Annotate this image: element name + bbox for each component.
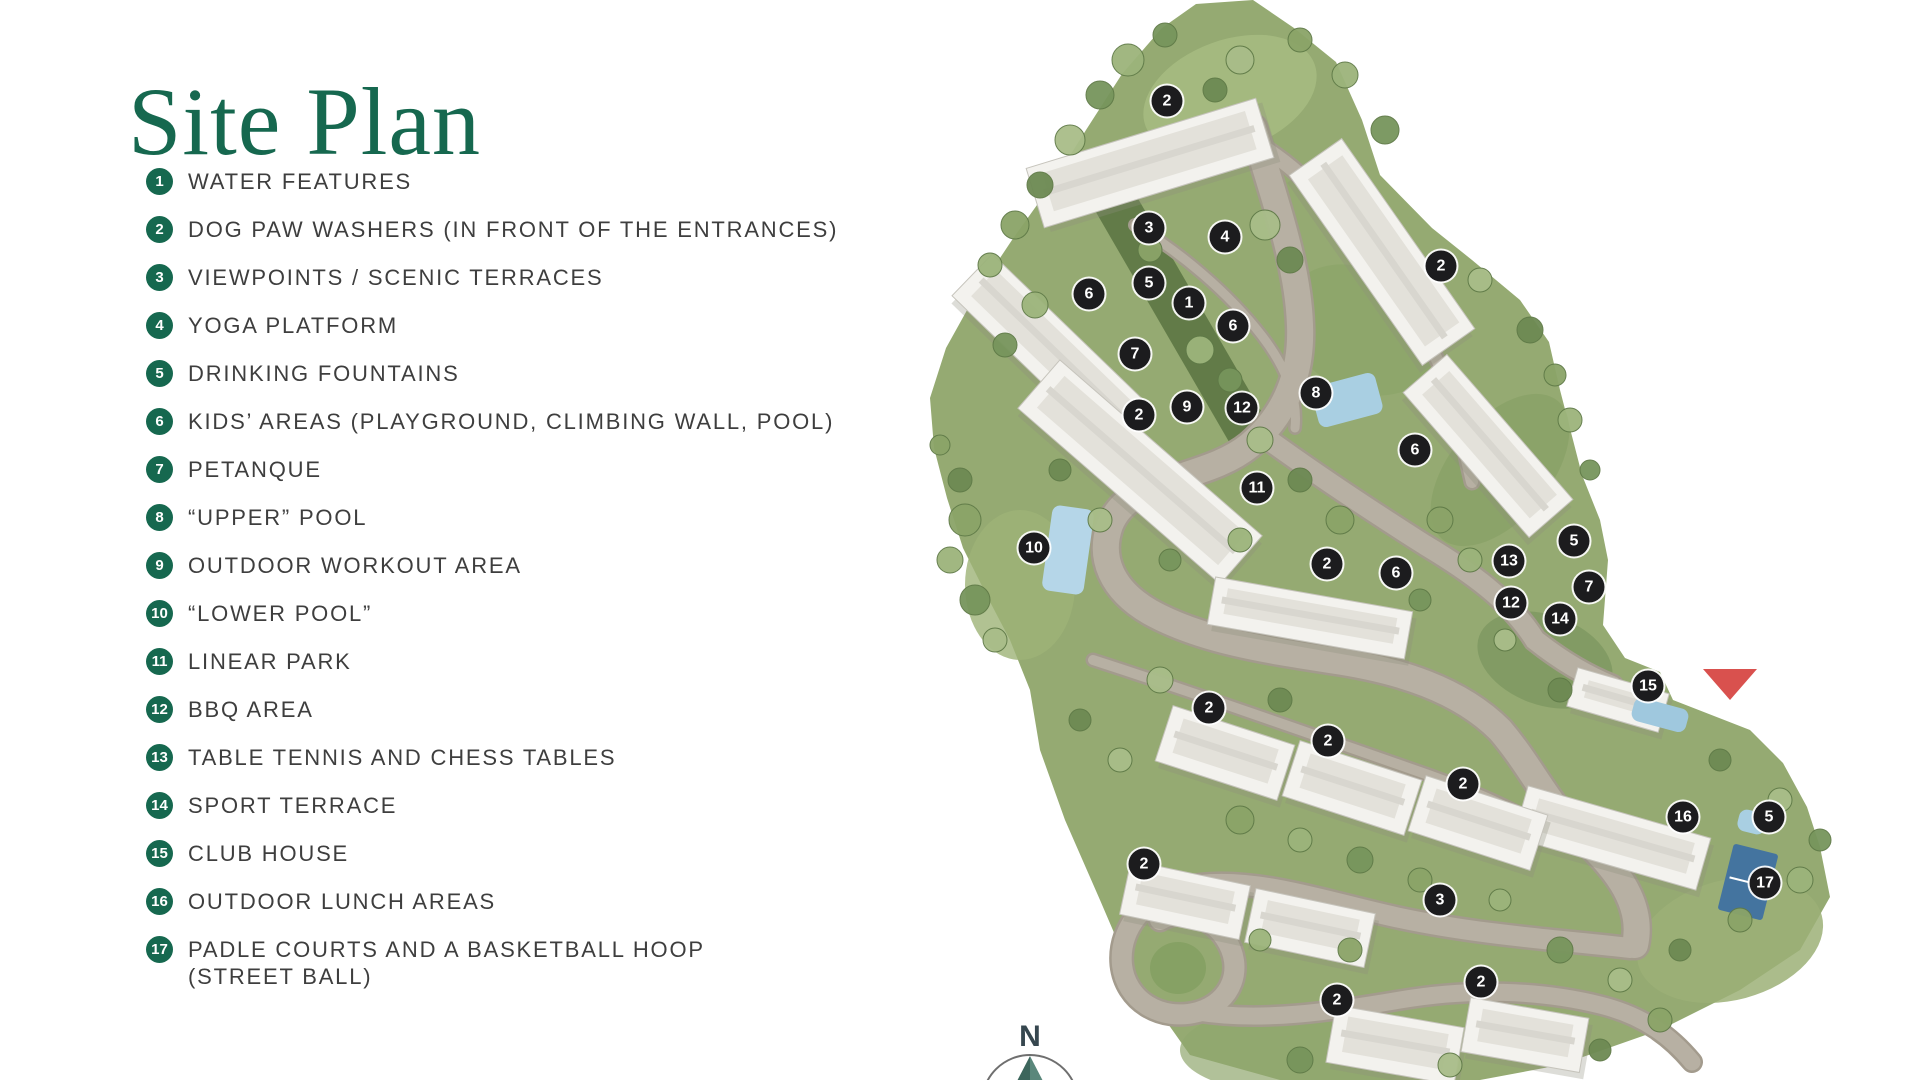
legend-item-11: 11LINEAR PARK [146, 648, 838, 696]
legend-label-text: OUTDOOR LUNCH AREAS [188, 888, 496, 915]
compass-needle-icon [1016, 1056, 1030, 1080]
map-marker-12: 12 [1227, 393, 1258, 424]
map-marker-16: 16 [1668, 802, 1699, 833]
legend-item-3: 3VIEWPOINTS / SCENIC TERRACES [146, 264, 838, 312]
legend-label: DRINKING FOUNTAINS [188, 360, 460, 387]
map-marker-2: 2 [1322, 985, 1353, 1016]
legend-item-6: 6KIDS’ AREAS (PLAYGROUND, CLIMBING WALL,… [146, 408, 838, 456]
legend-badge: 5 [146, 360, 173, 387]
legend-label: “UPPER” POOL [188, 504, 367, 531]
legend-badge: 6 [146, 408, 173, 435]
map-marker-5: 5 [1134, 268, 1165, 299]
compass: N [972, 1008, 1092, 1080]
legend-item-7: 7PETANQUE [146, 456, 838, 504]
map-marker-6: 6 [1218, 311, 1249, 342]
legend-label: DOG PAW WASHERS (IN FRONT OF THE ENTRANC… [188, 216, 838, 243]
legend-label-text: DOG PAW WASHERS (IN FRONT OF THE ENTRANC… [188, 216, 838, 243]
legend-label-text: PETANQUE [188, 456, 322, 483]
legend-label-text: SPORT TERRACE [188, 792, 397, 819]
map-marker-6: 6 [1400, 435, 1431, 466]
legend-item-16: 16OUTDOOR LUNCH AREAS [146, 888, 838, 936]
legend-label: SPORT TERRACE [188, 792, 397, 819]
legend-badge: 9 [146, 552, 173, 579]
legend-badge: 14 [146, 792, 173, 819]
map-marker-7: 7 [1120, 339, 1151, 370]
legend-label-text: PADLE COURTS AND A BASKETBALL HOOP [188, 936, 705, 963]
legend-item-9: 9OUTDOOR WORKOUT AREA [146, 552, 838, 600]
legend: 1WATER FEATURES2DOG PAW WASHERS (IN FRON… [146, 168, 838, 990]
legend-badge: 16 [146, 888, 173, 915]
legend-label-text2: (STREET BALL) [188, 963, 705, 990]
legend-badge: 2 [146, 216, 173, 243]
map-marker-5: 5 [1754, 802, 1785, 833]
legend-label: PETANQUE [188, 456, 322, 483]
map-marker-3: 3 [1134, 213, 1165, 244]
legend-item-5: 5DRINKING FOUNTAINS [146, 360, 838, 408]
legend-badge: 15 [146, 840, 173, 867]
legend-label-text: OUTDOOR WORKOUT AREA [188, 552, 522, 579]
legend-item-2: 2DOG PAW WASHERS (IN FRONT OF THE ENTRAN… [146, 216, 838, 264]
legend-label-text: CLUB HOUSE [188, 840, 349, 867]
map-marker-7: 7 [1574, 572, 1605, 603]
legend-label: “LOWER POOL” [188, 600, 372, 627]
map-marker-2: 2 [1448, 769, 1479, 800]
legend-badge: 17 [146, 936, 173, 963]
legend-label-text: WATER FEATURES [188, 168, 412, 195]
legend-badge: 13 [146, 744, 173, 771]
map-marker-2: 2 [1124, 400, 1155, 431]
legend-badge: 11 [146, 648, 173, 675]
map-marker-15: 15 [1633, 671, 1664, 702]
legend-label: CLUB HOUSE [188, 840, 349, 867]
map-marker-14: 14 [1545, 604, 1576, 635]
map-marker-2: 2 [1466, 967, 1497, 998]
map-marker-8: 8 [1301, 378, 1332, 409]
legend-item-17: 17PADLE COURTS AND A BASKETBALL HOOP(STR… [146, 936, 838, 990]
legend-item-8: 8“UPPER” POOL [146, 504, 838, 552]
location-pointer-icon [1703, 669, 1757, 700]
legend-item-4: 4YOGA PLATFORM [146, 312, 838, 360]
map-marker-12: 12 [1496, 588, 1527, 619]
legend-label-text: TABLE TENNIS AND CHESS TABLES [188, 744, 616, 771]
legend-item-15: 15CLUB HOUSE [146, 840, 838, 888]
legend-badge: 12 [146, 696, 173, 723]
map-marker-5: 5 [1559, 526, 1590, 557]
legend-label: WATER FEATURES [188, 168, 412, 195]
legend-label-text: “LOWER POOL” [188, 600, 372, 627]
legend-item-14: 14SPORT TERRACE [146, 792, 838, 840]
map-marker-11: 11 [1242, 473, 1273, 504]
map-marker-4: 4 [1210, 222, 1241, 253]
legend-label-text: BBQ AREA [188, 696, 314, 723]
map-marker-6: 6 [1074, 279, 1105, 310]
legend-label: LINEAR PARK [188, 648, 352, 675]
legend-item-13: 13TABLE TENNIS AND CHESS TABLES [146, 744, 838, 792]
map-marker-2: 2 [1152, 86, 1183, 117]
map-marker-2: 2 [1194, 693, 1225, 724]
map-marker-1: 1 [1174, 288, 1205, 319]
legend-item-1: 1WATER FEATURES [146, 168, 838, 216]
compass-north-label: N [1019, 1020, 1041, 1053]
map-marker-3: 3 [1425, 885, 1456, 916]
legend-badge: 7 [146, 456, 173, 483]
legend-label-text: LINEAR PARK [188, 648, 352, 675]
legend-badge: 8 [146, 504, 173, 531]
legend-label: VIEWPOINTS / SCENIC TERRACES [188, 264, 604, 291]
legend-badge: 10 [146, 600, 173, 627]
legend-badge: 1 [146, 168, 173, 195]
legend-label: TABLE TENNIS AND CHESS TABLES [188, 744, 616, 771]
legend-label-text: DRINKING FOUNTAINS [188, 360, 460, 387]
legend-label: KIDS’ AREAS (PLAYGROUND, CLIMBING WALL, … [188, 408, 834, 435]
legend-badge: 4 [146, 312, 173, 339]
page-title: Site Plan [128, 66, 481, 177]
legend-label: YOGA PLATFORM [188, 312, 398, 339]
legend-badge: 3 [146, 264, 173, 291]
map-marker-2: 2 [1313, 726, 1344, 757]
compass-needle-icon [1030, 1056, 1044, 1080]
legend-item-12: 12BBQ AREA [146, 696, 838, 744]
map-marker-10: 10 [1019, 533, 1050, 564]
legend-label-text: “UPPER” POOL [188, 504, 367, 531]
legend-item-10: 10“LOWER POOL” [146, 600, 838, 648]
legend-label: BBQ AREA [188, 696, 314, 723]
map-marker-17: 17 [1750, 868, 1781, 899]
legend-label-text: KIDS’ AREAS (PLAYGROUND, CLIMBING WALL, … [188, 408, 834, 435]
legend-label: OUTDOOR WORKOUT AREA [188, 552, 522, 579]
site-plan-page: Site Plan 1WATER FEATURES2DOG PAW WASHER… [0, 0, 1920, 1080]
map-marker-6: 6 [1381, 558, 1412, 589]
map-marker-2: 2 [1426, 251, 1457, 282]
legend-label-text: YOGA PLATFORM [188, 312, 398, 339]
map-marker-2: 2 [1312, 549, 1343, 580]
map-marker-2: 2 [1129, 849, 1160, 880]
map-marker-9: 9 [1172, 392, 1203, 423]
legend-label-text: VIEWPOINTS / SCENIC TERRACES [188, 264, 604, 291]
legend-label: OUTDOOR LUNCH AREAS [188, 888, 496, 915]
map-marker-13: 13 [1494, 546, 1525, 577]
legend-label: PADLE COURTS AND A BASKETBALL HOOP(STREE… [188, 936, 705, 990]
